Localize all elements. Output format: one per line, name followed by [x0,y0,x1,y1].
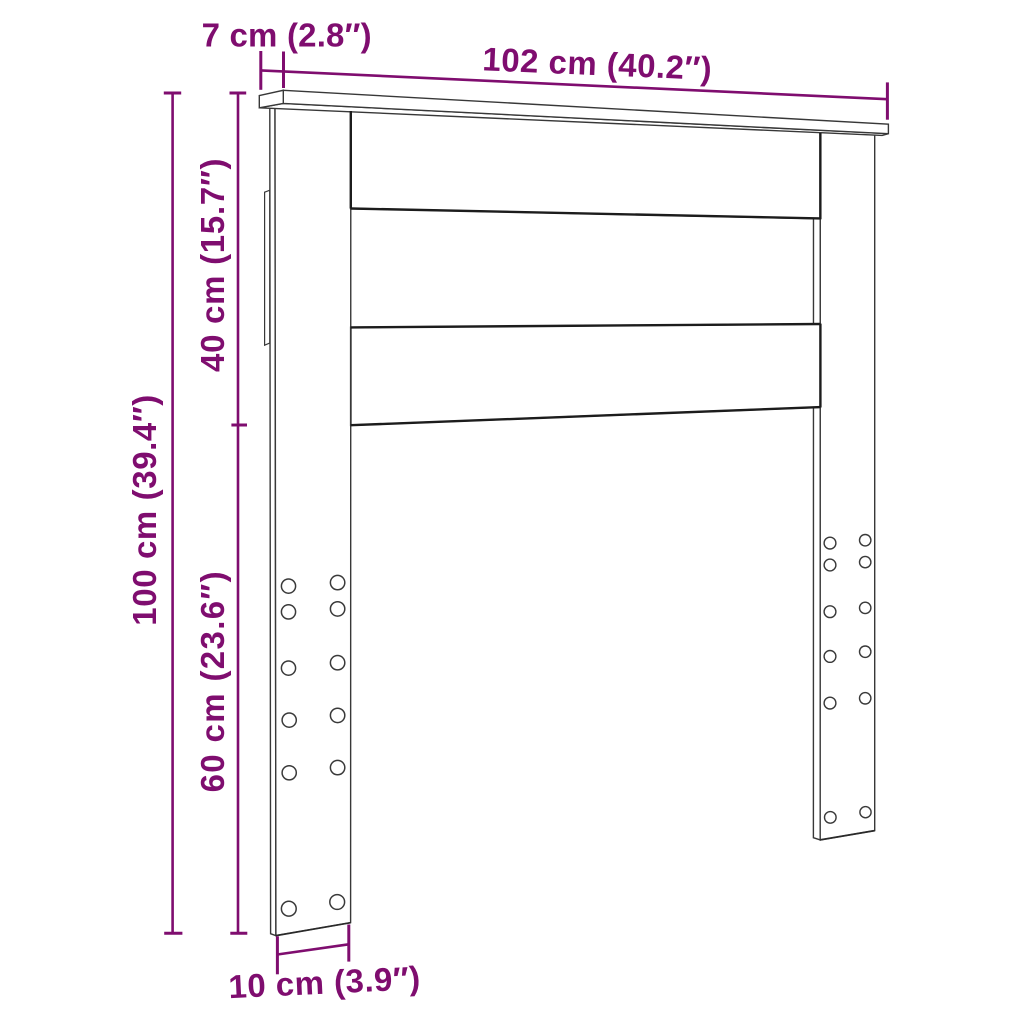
svg-text:7 cm (2.8″): 7 cm (2.8″) [202,17,372,54]
svg-text:40 cm (15.7″): 40 cm (15.7″) [194,159,231,373]
svg-text:100 cm (39.4″): 100 cm (39.4″) [126,395,163,626]
svg-text:60 cm (23.6″): 60 cm (23.6″) [194,571,231,792]
